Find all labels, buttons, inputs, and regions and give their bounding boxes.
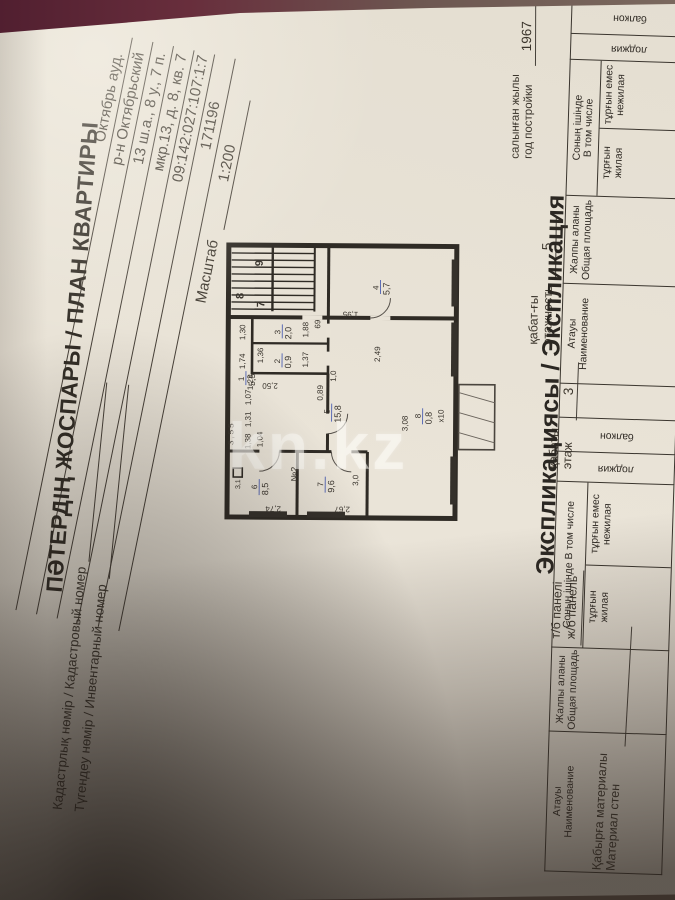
dim: х10: [437, 409, 446, 423]
dim: 1,74: [238, 353, 247, 369]
col-header-name: АтауыНаименование: [560, 284, 675, 388]
dim: 2,50: [262, 381, 278, 390]
kn-kz-watermark: kn.kz: [228, 408, 408, 484]
svg-text:1: 1: [237, 376, 246, 381]
col-header-balcony: балкон: [557, 418, 675, 456]
dim: 2,67: [334, 505, 350, 514]
svg-text:2,0: 2,0: [283, 327, 293, 340]
col-header-balcony: балкон: [571, 0, 675, 38]
dim: 1,88: [301, 321, 310, 337]
dim: 1,30: [238, 324, 247, 340]
room-label-balcony: 8 0,8: [414, 408, 434, 424]
svg-text:0,9: 0,9: [283, 356, 293, 369]
staircase-treads: [231, 247, 314, 312]
col-header-living: тұрғынжилая: [583, 566, 671, 651]
room-label-bath: 3 2,0: [273, 324, 293, 339]
dim: 0,89: [316, 384, 325, 400]
col-group-including: Соның ішінде В том числе тұрғынжилая тұр…: [551, 482, 674, 652]
dim: 1,0: [329, 370, 338, 382]
svg-text:2: 2: [273, 358, 282, 363]
col-group-including: Соның ішіндеВ том числе тұрғынжилая тұрғ…: [565, 60, 675, 200]
balcony: [458, 385, 494, 450]
room-label-wc: 2 0,9: [273, 353, 293, 368]
apartment-number: 9: [254, 260, 266, 266]
svg-text:6: 6: [250, 484, 259, 489]
col-header-nonliving: тұрғын емеснежилая: [586, 483, 674, 569]
dim: 1,07: [244, 389, 253, 405]
dim: 1,23: [246, 374, 255, 390]
col-header-loggia: лоджия: [570, 34, 675, 64]
col-header-loggia: лоджия: [556, 452, 675, 486]
svg-text:5,7: 5,7: [382, 283, 392, 296]
col-header-nonliving: тұрғын емеснежилая: [600, 61, 675, 132]
photo-of-document: Октябрь ауд. р-н Октябрьский 13 ш.а., 8 …: [0, 0, 675, 900]
year-built-value: 1967: [519, 6, 536, 66]
apartment-number: 8: [234, 293, 246, 299]
wc-divider: [252, 343, 328, 344]
explication-table: АтауыНаименование Жалпы аланыОбщая площа…: [544, 0, 675, 875]
dim: 1,95: [342, 310, 358, 319]
year-label-ru: год постройки: [523, 84, 535, 158]
room-label-kitchen: 4 5,7: [372, 280, 392, 295]
svg-text:8: 8: [414, 413, 423, 418]
svg-text:3: 3: [273, 329, 282, 334]
col-header-name: АтауыНаименование: [544, 731, 666, 875]
dim: 2,74: [265, 504, 281, 513]
year-built-field: салынған жылы год постройки 1967: [510, 6, 537, 159]
col-header-total-area: Жалпы аланыОбщая площадь: [563, 196, 675, 288]
col-header-living: тұрғынжилая: [597, 129, 675, 199]
col-header-total-area: Жалпы аланыОбщая площадь: [549, 648, 670, 736]
dim: 2,49: [373, 346, 382, 362]
col-spacer: [558, 384, 675, 422]
kitchen-wall: [328, 246, 329, 318]
svg-text:8,5: 8,5: [260, 483, 270, 496]
svg-text:4: 4: [372, 285, 381, 290]
dim: 1,36: [256, 347, 265, 363]
svg-text:0,8: 0,8: [424, 412, 434, 425]
floor-plan: 8 7 9 №2 1 5,5 2 0,9 3: [217, 219, 513, 535]
dim: 69: [313, 319, 322, 329]
apartment-number: 7: [255, 301, 267, 307]
dim: 1,37: [301, 351, 310, 367]
year-label-kk: салынған жылы: [510, 74, 522, 159]
